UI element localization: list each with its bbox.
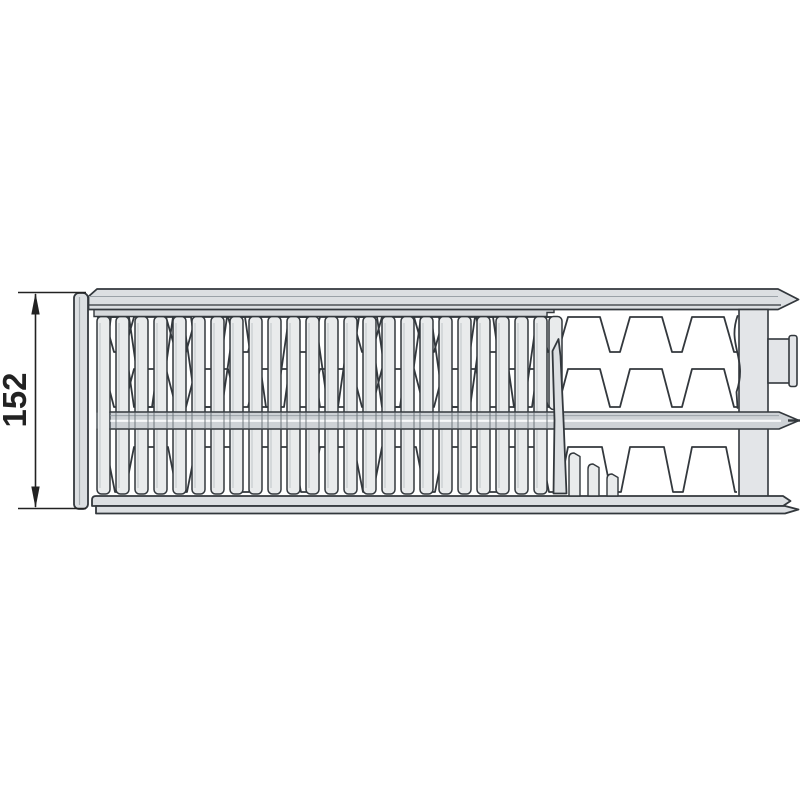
dimension-arrow-up xyxy=(31,293,39,315)
grille-slat xyxy=(230,317,243,495)
grille-cut-comb-teeth xyxy=(569,453,618,496)
top-panel-edge xyxy=(89,289,799,310)
grille-slat xyxy=(154,317,167,495)
bottom-panel-edge xyxy=(92,496,799,514)
grille-slat xyxy=(420,317,433,495)
grille-slat xyxy=(211,317,224,495)
connection-stub-flange xyxy=(789,336,797,387)
grille-comb-tooth xyxy=(569,453,580,496)
radiator-technical-drawing-page: 152 xyxy=(0,0,800,800)
radiator-section-drawing: 152 xyxy=(0,0,800,800)
grille-slat xyxy=(325,317,338,495)
grille-slat xyxy=(534,317,547,495)
grille-slat xyxy=(344,317,357,495)
left-end-cap-body xyxy=(74,293,88,509)
left-end-cap xyxy=(74,293,88,509)
middle-panel-edge xyxy=(110,412,800,429)
connection-stub xyxy=(768,336,797,387)
grille-slat xyxy=(439,317,452,495)
grille-comb-tooth xyxy=(588,464,599,496)
grille-slat xyxy=(287,317,300,495)
grille-slat xyxy=(249,317,262,495)
grille-slat xyxy=(515,317,528,495)
grille-slat xyxy=(496,317,509,495)
dimension-arrow-down xyxy=(31,487,39,509)
grille-slat xyxy=(363,317,376,495)
right-header-body xyxy=(739,310,768,497)
grille-slat xyxy=(192,317,205,495)
grille-slat xyxy=(306,317,319,495)
bottom-panel-bar-upper xyxy=(92,496,791,506)
grille-slat xyxy=(135,317,148,495)
grille-slat xyxy=(477,317,490,495)
right-header-channel xyxy=(734,310,768,497)
grille-slat xyxy=(97,317,110,495)
connection-stub-body xyxy=(768,339,790,383)
grille-slat xyxy=(382,317,395,495)
top-panel-bar xyxy=(89,289,799,310)
grille-slat xyxy=(458,317,471,495)
grille-slat xyxy=(268,317,281,495)
grille-slat xyxy=(401,317,414,495)
grille-comb-tooth xyxy=(607,474,618,496)
bottom-panel-bar-lower xyxy=(96,506,799,514)
grille-slats xyxy=(97,317,562,495)
grille-slat xyxy=(173,317,186,495)
dimension-value-label: 152 xyxy=(0,372,33,427)
grille-slat xyxy=(116,317,129,495)
